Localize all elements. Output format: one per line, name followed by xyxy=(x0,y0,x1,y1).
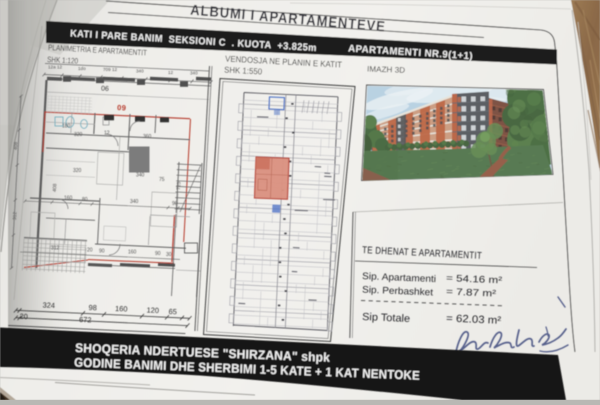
svg-text:20: 20 xyxy=(19,312,28,321)
svg-text:Sip Totale: Sip Totale xyxy=(362,311,411,325)
svg-text:160: 160 xyxy=(115,304,128,313)
svg-text:= 7.87 m²: = 7.87 m² xyxy=(446,287,496,300)
svg-text:12a 12: 12a 12 xyxy=(48,65,62,70)
svg-text:324: 324 xyxy=(42,301,55,310)
svg-text:= 54.16 m²: = 54.16 m² xyxy=(446,273,502,286)
svg-text:80: 80 xyxy=(82,197,88,203)
svg-text:90: 90 xyxy=(99,248,105,254)
svg-text:312: 312 xyxy=(51,246,60,252)
svg-text:09: 09 xyxy=(117,103,127,112)
svg-text:06: 06 xyxy=(101,86,109,93)
svg-text:320: 320 xyxy=(73,168,82,174)
svg-text:340: 340 xyxy=(130,199,139,205)
svg-text:672: 672 xyxy=(79,315,92,324)
svg-text:340: 340 xyxy=(190,71,198,76)
svg-text:SHK 1:550: SHK 1:550 xyxy=(224,65,263,77)
svg-text:30: 30 xyxy=(166,252,172,258)
svg-text:340: 340 xyxy=(136,173,145,179)
svg-text:408: 408 xyxy=(13,141,19,150)
svg-text:160: 160 xyxy=(128,250,137,256)
svg-text:12: 12 xyxy=(104,131,110,137)
svg-text:360: 360 xyxy=(143,134,152,140)
svg-text:12: 12 xyxy=(168,70,174,75)
svg-text:320: 320 xyxy=(74,132,83,138)
svg-text:180: 180 xyxy=(62,124,71,130)
svg-text:IMAZH 3D: IMAZH 3D xyxy=(367,65,406,75)
svg-text:65: 65 xyxy=(168,307,177,316)
svg-text:340: 340 xyxy=(136,68,144,73)
svg-text:20: 20 xyxy=(87,248,93,254)
svg-text:408: 408 xyxy=(52,183,58,192)
svg-text:75: 75 xyxy=(159,177,165,183)
svg-text:160: 160 xyxy=(64,196,73,202)
svg-text:= 62.03 m²: = 62.03 m² xyxy=(446,313,502,327)
svg-text:98: 98 xyxy=(88,303,97,312)
svg-text:312: 312 xyxy=(12,211,18,220)
svg-text:90: 90 xyxy=(155,251,161,257)
svg-text:709 12: 709 12 xyxy=(103,67,117,72)
svg-text:120: 120 xyxy=(146,306,159,315)
svg-text:725: 725 xyxy=(176,181,182,190)
svg-text:1do: 1do xyxy=(78,66,86,71)
